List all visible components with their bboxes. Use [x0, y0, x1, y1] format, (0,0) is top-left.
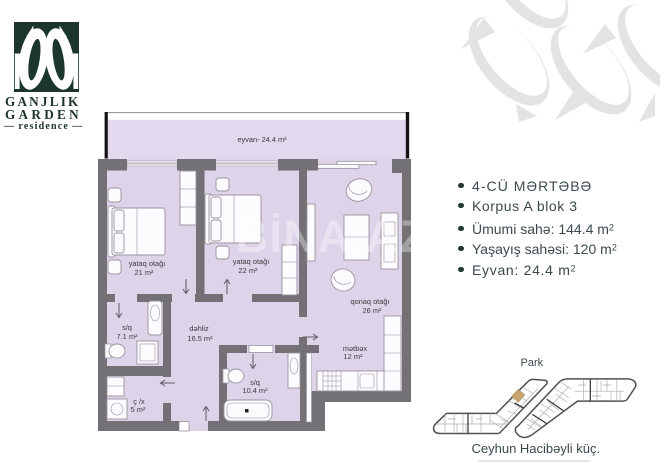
svg-text:22 m²: 22 m²: [239, 266, 258, 275]
svg-text:dəhliz: dəhliz: [189, 324, 209, 333]
svg-text:5 m²: 5 m²: [131, 405, 146, 414]
svg-text:16.5 m²: 16.5 m²: [187, 334, 213, 343]
svg-text:21 m²: 21 m²: [135, 268, 154, 277]
svg-text:yataq otağı: yataq otağı: [129, 259, 166, 268]
svg-text:BİNA.AZ: BİNA.AZ: [236, 211, 429, 262]
svg-text:12 m²: 12 m²: [344, 352, 363, 361]
svg-text:eyvan- 24.4 m²: eyvan- 24.4 m²: [237, 135, 287, 144]
svg-text:7.1 m²: 7.1 m²: [117, 332, 138, 341]
svg-text:s/q: s/q: [122, 323, 132, 332]
svg-text:26 m²: 26 m²: [363, 306, 382, 315]
svg-text:qonaq otağı: qonaq otağı: [350, 297, 389, 306]
svg-text:10.4 m²: 10.4 m²: [242, 386, 268, 395]
